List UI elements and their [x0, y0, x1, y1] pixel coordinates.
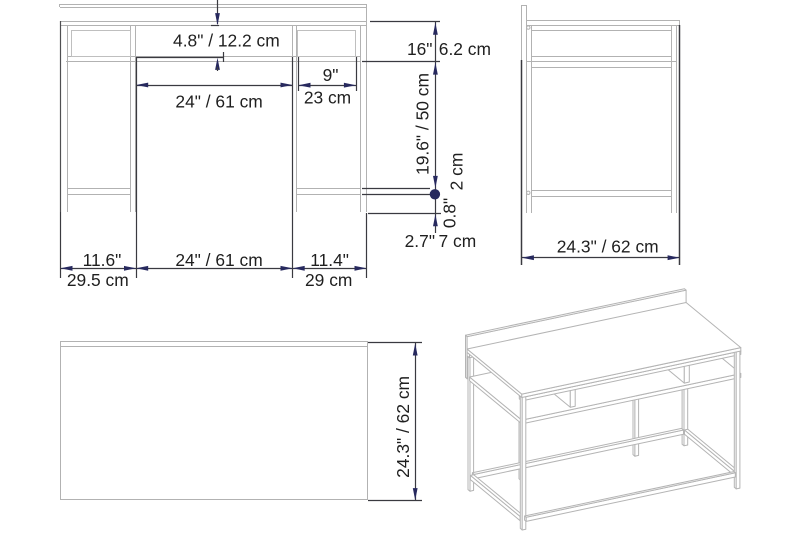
svg-text:24.3" / 62 cm: 24.3" / 62 cm: [393, 376, 413, 478]
svg-text:9": 9": [323, 65, 339, 85]
svg-text:16": 16": [407, 39, 433, 59]
svg-text:29.5 cm: 29.5 cm: [67, 270, 129, 290]
svg-text:4.8" / 12.2 cm: 4.8" / 12.2 cm: [173, 31, 280, 51]
svg-text:2.7": 2.7": [405, 231, 435, 251]
svg-text:24" / 61 cm: 24" / 61 cm: [175, 250, 262, 270]
svg-text:23 cm: 23 cm: [304, 87, 351, 107]
svg-text:11.6": 11.6": [83, 250, 122, 270]
svg-text:0.8": 0.8": [440, 198, 460, 228]
svg-text:19.6" / 50 cm: 19.6" / 50 cm: [412, 73, 432, 175]
svg-text:24.3" / 62 cm: 24.3" / 62 cm: [557, 237, 659, 257]
svg-text:7 cm: 7 cm: [439, 231, 477, 251]
svg-text:24" / 61 cm: 24" / 61 cm: [175, 91, 262, 111]
svg-text:2 cm: 2 cm: [446, 153, 466, 191]
svg-text:29 cm: 29 cm: [305, 270, 352, 290]
svg-text:11.4": 11.4": [310, 250, 349, 270]
svg-text:6.2 cm: 6.2 cm: [439, 39, 491, 59]
